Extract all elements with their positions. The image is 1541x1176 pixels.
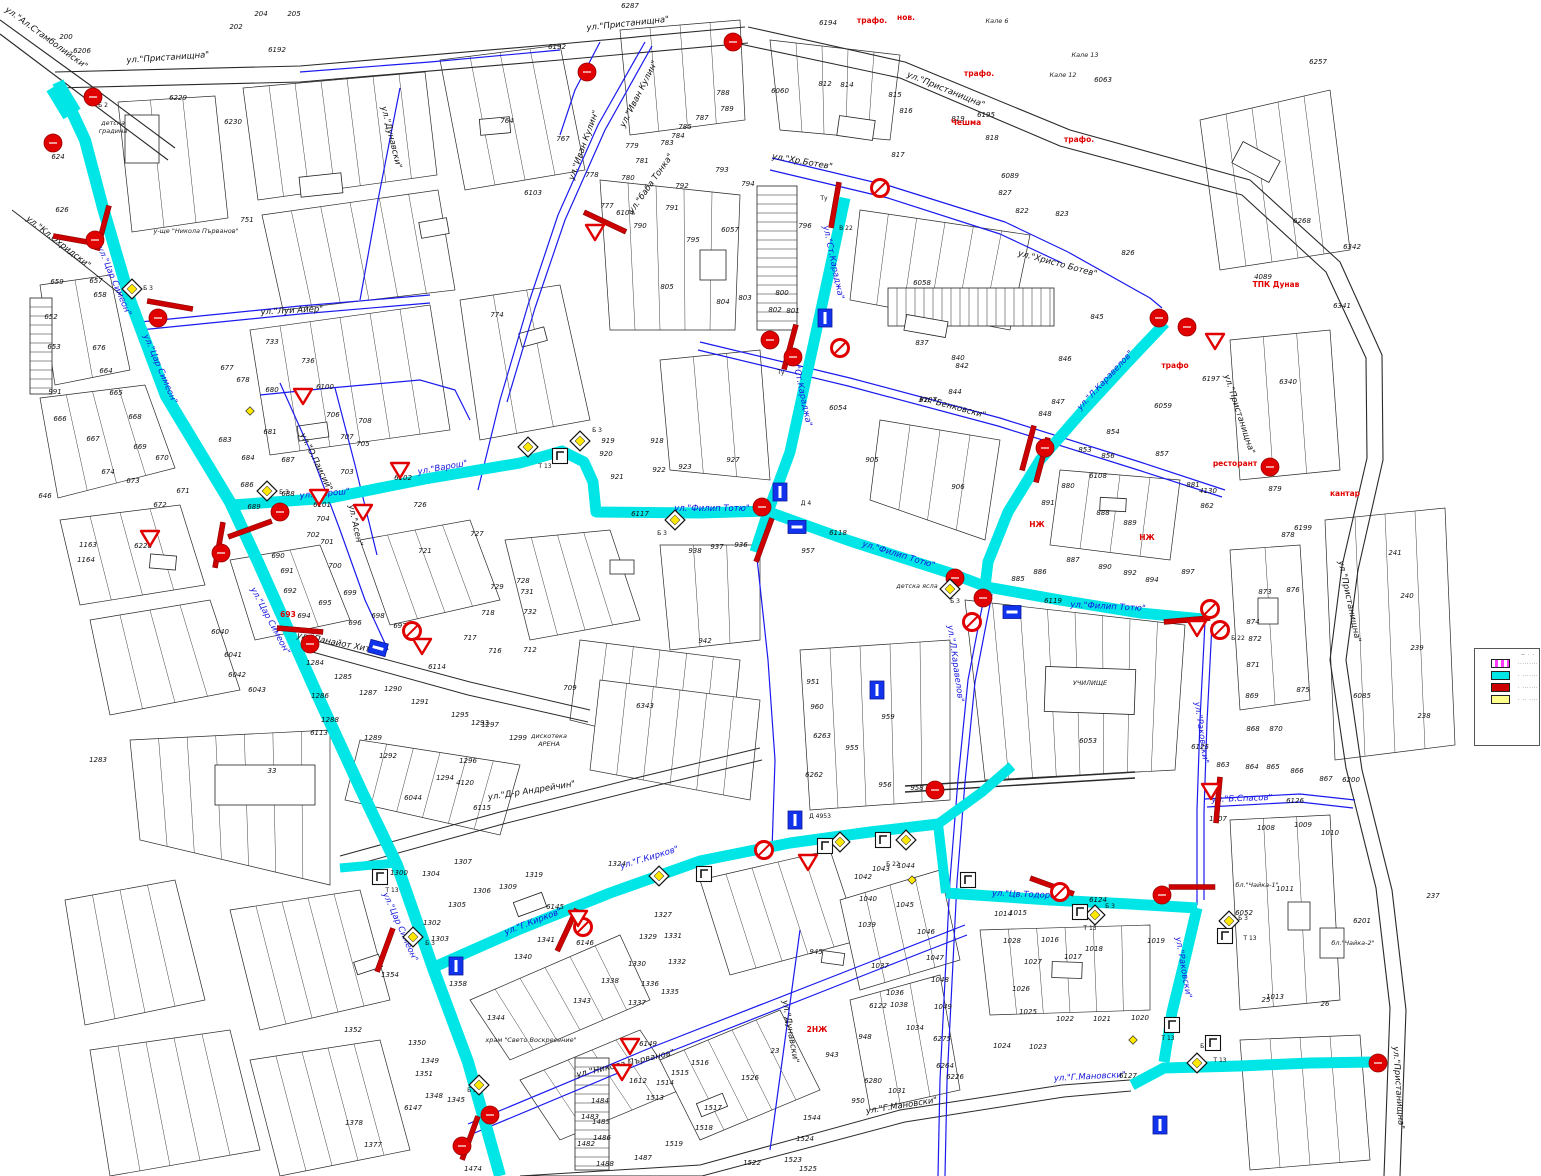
parcel-number: 240 [1400, 592, 1414, 600]
parcel-number: 6230 [224, 118, 242, 126]
street-label: ул."Пристанищна" [125, 50, 210, 66]
utility-label-red: кантар [1330, 489, 1361, 498]
parcel-number: 1523 [784, 1156, 802, 1164]
parcel-number: 1329 [639, 933, 657, 941]
parcel-number: 812 [818, 80, 832, 88]
parcel-number: 726 [413, 501, 427, 509]
parcel-number: 1305 [448, 901, 466, 909]
parcel-number: 1047 [926, 954, 944, 962]
parcel-number: 6108 [1089, 472, 1107, 480]
building-outline [610, 560, 634, 574]
parcel-number: 1513 [646, 1094, 664, 1102]
parcel-number: 802 [768, 306, 782, 314]
map-viewport[interactable]: ул."Пристанищна"ул."Пристанищна"ул."Прис… [0, 0, 1541, 1176]
parcel-number: 699 [343, 589, 357, 597]
parcel-number: 704 [316, 515, 329, 523]
parcel-number: 727 [470, 530, 484, 538]
parcel-number: 716 [488, 647, 502, 655]
parcel-number: 1487 [634, 1154, 652, 1162]
legend-swatch [1491, 671, 1510, 680]
parcel-number: 991 [48, 388, 61, 396]
utility-label-red: 693 [280, 610, 296, 619]
parcel-number: 6226 [946, 1073, 964, 1081]
street-label: ул."Пристанищна" [1390, 1045, 1406, 1130]
parcel-number: 1474 [464, 1165, 482, 1173]
parcel-number: 1163 [79, 541, 97, 549]
parcel-number: 1307 [454, 858, 472, 866]
parcel-number: 927 [726, 456, 740, 464]
parcel-number: 1289 [364, 734, 382, 742]
yield-sign-icon [413, 639, 431, 654]
parcel-number: 866 [1290, 767, 1304, 775]
legend-item-label: · ·· ···· [1518, 697, 1538, 702]
parcel-number: 700 [328, 562, 342, 570]
parcel-number: 204 [254, 10, 267, 18]
parcel-number: 6060 [771, 87, 789, 95]
parcel-number: 1023 [1029, 1043, 1047, 1051]
parcel-number: 918 [650, 437, 664, 445]
parcel-number: 1037 [871, 962, 889, 970]
parcel-number: 791 [665, 204, 678, 212]
street-label: ул."Филип Тотю" [1069, 600, 1146, 614]
parcel-number: 6341 [1333, 302, 1351, 310]
street-label: ул."Хр.Ботев" [770, 152, 833, 173]
parcel-number: 6043 [248, 686, 266, 694]
parcel-number: 803 [738, 294, 751, 302]
parcel-number: 867 [1319, 775, 1333, 783]
road-closure-bar-icon [147, 299, 193, 312]
parcel-number: 848 [1038, 410, 1052, 418]
parcel-number: 1296 [459, 757, 477, 765]
parcel-number: 922 [652, 466, 666, 474]
parcel-number: 1332 [668, 958, 686, 966]
parcel-number: 6114 [428, 663, 446, 671]
parcel-number: 694 [297, 612, 310, 620]
info-sign-icon [1218, 929, 1233, 944]
parcel-number: 1042 [854, 873, 872, 881]
parcel-number: 1027 [1024, 958, 1042, 966]
parcel-number: 671 [176, 487, 189, 495]
parcel-number: 657 [89, 277, 103, 285]
parcel-number: 6149 [639, 1040, 657, 1048]
parcel-number: 6089 [1001, 172, 1019, 180]
utility-label-red: ТПК Дунав [1253, 280, 1300, 289]
parcel-number: 864 [1245, 763, 1258, 771]
parcel-number: 6262 [805, 771, 823, 779]
street-label: ул."Филип Тотю" [860, 539, 936, 571]
parcel-number: 1286 [311, 692, 329, 700]
parcel-number: 784 [671, 132, 684, 140]
parcel-number: 241 [1388, 549, 1401, 557]
parcel-block [660, 350, 770, 480]
parcel-number: 6280 [864, 1077, 882, 1085]
parcel-number: 6085 [1353, 692, 1371, 700]
legend-swatch [1491, 683, 1510, 692]
parcel-number: 921 [610, 473, 623, 481]
parcel-number: 6275 [933, 1035, 951, 1043]
parcel-number: 6059 [1154, 402, 1172, 410]
place-label: УЧИЛИЩЕ [1073, 679, 1108, 687]
parcel-number: 959 [881, 713, 895, 721]
parcel-number: 6257 [1309, 58, 1327, 66]
parcel-number: 701 [320, 538, 333, 546]
parcel-number: 6146 [576, 939, 594, 947]
street-line-blue [1068, 252, 1162, 308]
parcel-number: 687 [281, 456, 295, 464]
map-legend: — · · ·········· ········ ········ ·· ··… [1474, 648, 1540, 746]
parcel-number: 1522 [743, 1159, 761, 1167]
parcel-number: 6201 [1353, 917, 1371, 925]
parcel-number: 869 [1245, 692, 1259, 700]
parcel-block [660, 545, 760, 650]
parcel-number: 1046 [917, 928, 935, 936]
parcel-number: 6127 [1119, 1072, 1137, 1080]
parcel-number: 237 [1426, 892, 1440, 900]
parcel-number: 1034 [906, 1024, 924, 1032]
parcel-number: 847 [1051, 398, 1065, 406]
small-diamond-icon [1129, 1036, 1137, 1044]
parcel-number: 1020 [1131, 1014, 1149, 1022]
parcel-number: 891 [1041, 499, 1054, 507]
parcel-number: 6287 [621, 2, 639, 10]
parcel-number: 1015 [1009, 909, 1027, 917]
parcel-number: 863 [1216, 761, 1229, 769]
parcel-number: 800 [775, 289, 789, 297]
parcel-number: 885 [1011, 575, 1025, 583]
parcel-number: 23 [771, 1047, 780, 1055]
parcel-number: 1612 [629, 1077, 647, 1085]
legend-header: — · · [1475, 649, 1539, 657]
parcel-number: 1340 [514, 953, 532, 961]
parcel-number: 626 [55, 206, 69, 214]
parcel-number: 1341 [537, 936, 555, 944]
parcel-number: 942 [698, 637, 712, 645]
parcel-number: 1306 [473, 887, 491, 895]
parcel-number: 1514 [656, 1079, 674, 1087]
parcel-number: 1348 [425, 1092, 443, 1100]
sign-code-label: Д 4953 [809, 813, 831, 820]
street-label: ул."Филип Тотю" [673, 504, 750, 514]
parcel-number: 674 [101, 468, 114, 476]
parcel-number: 659 [50, 278, 64, 286]
utility-label-red: трафо. [857, 16, 887, 25]
parcel-number: 6192 [268, 46, 286, 54]
parcel-number: 814 [840, 81, 853, 89]
parcel-number: 936 [734, 541, 748, 549]
parcel-number: 1377 [364, 1141, 382, 1149]
parcel-number: 788 [716, 89, 730, 97]
parcel-number: 1378 [345, 1119, 363, 1127]
street-label: ул."Л.Каравелов" [1075, 349, 1136, 414]
parcel-number: 1515 [671, 1069, 689, 1077]
parcel-number: 6192 [548, 43, 566, 51]
parcel-number: 6053 [1079, 737, 1097, 745]
parcel-number: 1330 [628, 960, 646, 968]
parcel-number: 1335 [661, 988, 679, 996]
one-way-arrow [876, 684, 879, 696]
utility-label-red: Чешма [951, 118, 981, 127]
parcel-block [40, 385, 175, 498]
parcel-number: 718 [481, 609, 495, 617]
parcel-number: 681 [263, 428, 276, 436]
parcel-number: 6343 [636, 702, 654, 710]
blue-dash-glyph [1007, 611, 1018, 614]
parcel-number: 712 [523, 646, 537, 654]
parcel-block [250, 1040, 410, 1176]
parcel-number: 958 [910, 784, 924, 792]
parcel-number: 1288 [321, 716, 339, 724]
parcel-number: 846 [1058, 355, 1072, 363]
small-diamond-icon [246, 407, 254, 415]
parcel-number: 1010 [1321, 829, 1339, 837]
parcel-number: 692 [283, 587, 297, 595]
parcel-number: 1290 [384, 685, 402, 693]
parcel-number: 709 [563, 684, 577, 692]
parcel-number: 708 [358, 417, 372, 425]
parcel-number: 938 [688, 547, 702, 555]
utility-label-red: трафо. [964, 69, 994, 78]
parcel-number: 897 [1181, 568, 1195, 576]
legend-item-magenta-striped-route: ········· [1475, 657, 1539, 669]
parcel-number: 894 [1145, 576, 1158, 584]
parcel-number: 707 [340, 433, 354, 441]
parcel-number: 844 [948, 388, 961, 396]
parcel-number: 691 [280, 567, 293, 575]
parcel-block [90, 600, 240, 715]
parcel-number: 881 [1186, 481, 1199, 489]
legend-item-label: ········· [1518, 661, 1538, 666]
parcel-number: 801 [786, 307, 799, 315]
parcel-number: 792 [675, 182, 689, 190]
parcel-number: 879 [1268, 485, 1282, 493]
parcel-number: 905 [865, 456, 879, 464]
parcel-number: 876 [1286, 586, 1300, 594]
parcel-number: 689 [247, 503, 261, 511]
parcel-number: 1309 [499, 883, 517, 891]
parcel-number: 6126 [1286, 797, 1304, 805]
parcel-number: 6054 [829, 404, 847, 412]
parcel-number: 1018 [1085, 945, 1103, 953]
parcel-number: 1345 [447, 1096, 465, 1104]
parcel-number: 816 [899, 107, 913, 115]
parcel-number: 6268 [1293, 217, 1311, 225]
legend-item-label: · ······· [1518, 685, 1538, 690]
parcel-block [870, 420, 1000, 540]
place-label: у-ще "Никола Първанов" [152, 227, 238, 235]
parcel-number: 1294 [436, 774, 454, 782]
sign-code-label: Б 3 [425, 940, 435, 947]
building-outline [1258, 598, 1278, 624]
parcel-number: 665 [109, 389, 123, 397]
sign-code-label: Т 13 [1160, 1035, 1174, 1042]
parcel-number: 1324 [608, 860, 626, 868]
parcel-number: 888 [1096, 509, 1110, 517]
parcel-number: 818 [985, 134, 999, 142]
parcel-number: 736 [301, 357, 315, 365]
legend-item-label: · ······· [1518, 673, 1538, 678]
parcel-number: 6200 [1342, 776, 1360, 784]
sign-code-label: В 22 [839, 225, 853, 232]
parcel-number: 1319 [525, 871, 543, 879]
parcel-number: 731 [520, 588, 533, 596]
street-label: ул."Ал.Стамболийски" [2, 4, 89, 71]
parcel-number: 6115 [473, 804, 491, 812]
yield-sign-icon [1188, 621, 1206, 636]
parcel-number: 684 [241, 454, 254, 462]
parcel-number: 868 [1246, 725, 1260, 733]
parcel-number: 955 [845, 744, 859, 752]
parcel-number: 652 [44, 313, 58, 321]
parcel-number: 875 [1296, 686, 1310, 694]
parcel-number: 826 [1121, 249, 1135, 257]
road-line [305, 650, 588, 722]
parcel-number: 787 [695, 114, 709, 122]
parcel-number: 873 [1258, 588, 1271, 596]
parcel-number: 6113 [310, 729, 328, 737]
parcel-number: 945 [809, 948, 823, 956]
parcel-number: 777 [600, 202, 614, 210]
parcel-number: 729 [490, 583, 504, 591]
parcel-number: 853 [1078, 446, 1091, 454]
parcel-number: 6206 [73, 47, 91, 55]
parcel-number: 957 [801, 547, 815, 555]
parcel-number: 1349 [421, 1057, 439, 1065]
parcel-number: 1485 [592, 1118, 610, 1126]
sign-code-label: Б 3 [950, 598, 960, 605]
parcel-number: 6263 [813, 732, 831, 740]
info-sign-icon [818, 839, 833, 854]
building-outline [299, 173, 343, 197]
sign-code-label: Ту [776, 369, 785, 376]
parcel-number: 238 [1417, 712, 1431, 720]
parcel-number: 664 [99, 367, 112, 375]
parcel-number: 1022 [1056, 1015, 1074, 1023]
sign-code-label: Т 13 [1212, 1057, 1226, 1064]
parcel-number: 886 [1033, 568, 1047, 576]
parcel-number: 854 [1106, 428, 1119, 436]
parcel-number: 1017 [1064, 953, 1082, 961]
street-label: ул."Христо Ботев" [1016, 248, 1098, 279]
parcel-number: 4130 [1199, 487, 1217, 495]
utility-label-red: трафо [1161, 361, 1188, 370]
building-outline [1052, 961, 1083, 978]
parcel-number: 6041 [224, 651, 242, 659]
info-sign-icon [373, 870, 388, 885]
parcel-number: 677 [220, 364, 234, 372]
parcel-number: 624 [51, 153, 64, 161]
cadastral-map-canvas[interactable]: ул."Пристанищна"ул."Пристанищна"ул."Прис… [0, 0, 1541, 1176]
parcel-number: 1517 [704, 1104, 722, 1112]
parcel-number: 4120 [456, 779, 474, 787]
utility-label-red: НЖ [1029, 520, 1045, 529]
parcel-number: 6100 [316, 383, 334, 391]
parcel-number: 1518 [695, 1124, 713, 1132]
parcel-number: 695 [318, 599, 332, 607]
sign-code-label: Ту [819, 195, 828, 202]
parcel-number: 1036 [886, 989, 904, 997]
parcel-number: 1285 [334, 673, 352, 681]
parcel-number: 795 [686, 236, 700, 244]
parcel-number: 1021 [1093, 1015, 1111, 1023]
utility-label-red: 2НЖ [807, 1025, 828, 1034]
building-outline [149, 554, 176, 570]
parcel-number: 26 [1321, 1000, 1330, 1008]
parcel-number: 1297 [481, 721, 499, 729]
parcel-number: 666 [53, 415, 67, 423]
info-sign-icon [1206, 1036, 1221, 1051]
parcel-number: 794 [741, 180, 754, 188]
parcel-number: 805 [660, 283, 674, 291]
parcel-number: 703 [340, 468, 353, 476]
parcel-number: 1525 [799, 1165, 817, 1173]
parcel-number: 667 [86, 435, 100, 443]
parcel-number: 887 [1066, 556, 1080, 564]
street-label: ул."Луи Айер" [259, 304, 323, 317]
parcel-number: 796 [798, 222, 812, 230]
info-sign-icon [876, 833, 891, 848]
parcel-number: 1327 [654, 911, 672, 919]
parcel-number: 790 [633, 222, 647, 230]
parcel-number: 872 [1248, 635, 1262, 643]
parcel-number: 783 [660, 139, 673, 147]
parcel-block [60, 505, 205, 605]
place-label: градина [99, 127, 127, 135]
parcel-number: 6057 [721, 226, 739, 234]
parcel-number: 789 [720, 105, 734, 113]
parcel-number: 892 [1123, 569, 1137, 577]
parcel-block [590, 680, 760, 800]
parcel-number: 1040 [859, 895, 877, 903]
parcel-number: 6342 [1343, 243, 1361, 251]
one-way-arrow [794, 814, 797, 826]
parcel-number: 6199 [1294, 524, 1312, 532]
parcel-number: 669 [133, 443, 147, 451]
parcel-number: 200 [59, 33, 73, 41]
parcel-number: 6107 [919, 396, 937, 404]
place-label: бл."Чайка-2" [1331, 939, 1374, 947]
one-way-arrow [455, 960, 458, 972]
legend-swatch [1491, 659, 1510, 668]
parcel-number: 948 [858, 1033, 872, 1041]
parcel-number: 202 [229, 23, 243, 31]
parcel-number: 6103 [524, 189, 542, 197]
parcel-number: 937 [710, 543, 724, 551]
parcel-number: 878 [1281, 531, 1295, 539]
parcel-number: 1482 [577, 1140, 595, 1148]
parcel-number: 889 [1123, 519, 1137, 527]
legend-swatch [1491, 695, 1510, 704]
parcel-number: 706 [326, 411, 340, 419]
parcel-block [505, 530, 640, 640]
blue-dash-glyph [792, 526, 803, 529]
place-label: дискотека [530, 732, 567, 740]
parcel-number: 764 [500, 117, 513, 125]
parcel-number: 686 [240, 481, 254, 489]
parcel-number: 1350 [408, 1039, 426, 1047]
info-sign-icon [1165, 1018, 1180, 1033]
place-label: Кале 12 [1049, 71, 1076, 79]
parcel-number: 822 [1015, 207, 1029, 215]
road-closure-bar-icon [375, 928, 395, 973]
parcel-number: 6264 [936, 1062, 954, 1070]
building-outline [1044, 666, 1136, 714]
sign-code-label: Б 3 [143, 285, 153, 292]
parcel-number: 1284 [306, 659, 324, 667]
parcel-number: 751 [240, 216, 253, 224]
parcel-number: 1544 [803, 1114, 821, 1122]
parcel-number: 676 [92, 344, 106, 352]
route-street-cyan [340, 863, 396, 868]
